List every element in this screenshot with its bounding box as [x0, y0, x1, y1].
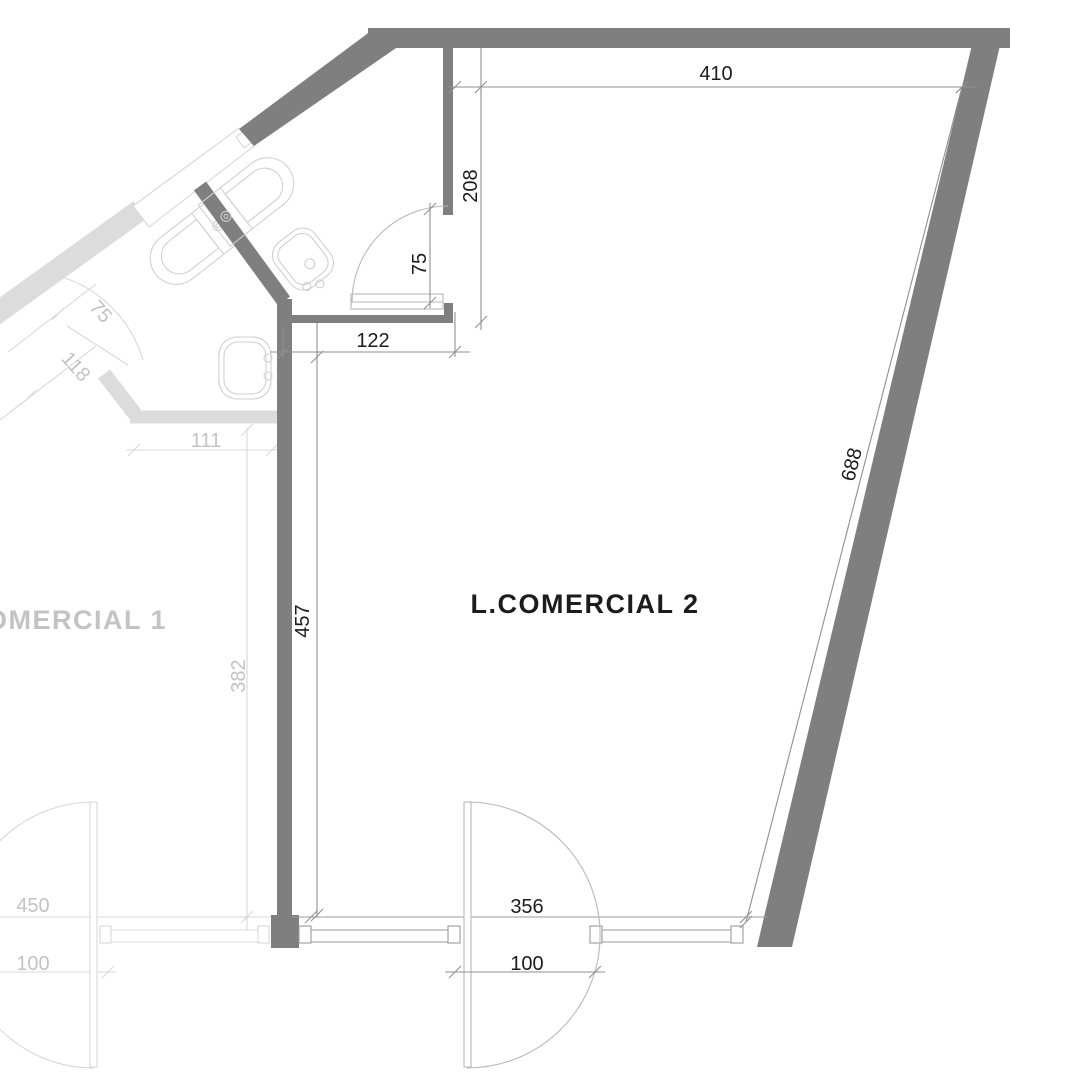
wall-left-vertical [277, 311, 292, 917]
wall-door-jamb [444, 303, 453, 315]
wall-bath-bottom [277, 315, 453, 323]
unit2-label: L.COMERCIAL 2 [470, 589, 699, 619]
dim-382: 382 [228, 659, 250, 692]
mullion [731, 926, 743, 943]
entry-door-leaf [464, 802, 471, 1067]
wall-top [368, 28, 1010, 48]
dim-100-light: 100 [16, 953, 49, 975]
wall-bath-right [443, 48, 453, 215]
dim-100: 100 [510, 953, 543, 975]
floor-plan-canvas: L.COMERCIAL 1 450 100 382 111 75 118 [0, 0, 1080, 1080]
dim-111: 111 [191, 430, 221, 452]
dim-410: 410 [699, 63, 732, 85]
mullion [299, 926, 311, 943]
dim-75: 75 [409, 253, 431, 275]
wall-end-column [271, 915, 299, 948]
mullion-light [100, 926, 111, 943]
dim-208: 208 [460, 169, 482, 202]
dim-457: 457 [292, 604, 314, 637]
mullion-door-jamb-left [448, 926, 460, 943]
paper-background [0, 0, 1080, 1080]
dim-450: 450 [16, 895, 49, 917]
comercial1-entry-door-leaf [90, 802, 97, 1067]
unit1-label: L.COMERCIAL 1 [0, 605, 167, 635]
dim-356: 356 [510, 896, 543, 918]
mullion-light [258, 926, 269, 943]
floor-plan-svg: L.COMERCIAL 1 450 100 382 111 75 118 [0, 0, 1080, 1080]
dim-122: 122 [356, 330, 389, 352]
